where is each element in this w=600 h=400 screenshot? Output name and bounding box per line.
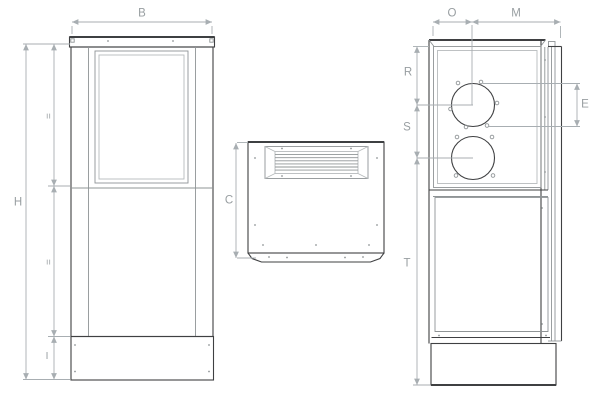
knockout-bottom <box>452 135 495 179</box>
top-panel-dimensions <box>236 143 256 259</box>
front-view <box>70 37 215 380</box>
cabinet-dimension-drawing <box>0 0 600 400</box>
dim-label-m: M <box>511 8 521 20</box>
front-window-inner <box>99 55 184 179</box>
dim-label-equal-upper: = <box>42 113 52 119</box>
dim-label-i: I <box>46 352 49 362</box>
front-window-outer <box>95 51 188 183</box>
side-back-panel <box>548 42 562 342</box>
front-top-cap <box>70 37 215 47</box>
dim-label-e: E <box>581 99 589 111</box>
side-base <box>431 344 556 386</box>
side-view <box>429 40 562 385</box>
side-upper-frame <box>434 47 542 188</box>
side-door-panel <box>435 198 548 332</box>
dim-label-h: H <box>14 197 22 209</box>
top-panel-view <box>248 142 384 262</box>
front-base <box>71 337 214 381</box>
dim-label-c: C <box>225 195 233 207</box>
dim-label-r: R <box>404 67 412 79</box>
technical-drawing-canvas: B H = = I C O M R S T E <box>0 0 600 400</box>
front-cabinet-body <box>71 47 213 337</box>
knockout-top <box>449 80 499 129</box>
dim-label-s: S <box>403 122 411 134</box>
dim-label-t: T <box>403 258 410 270</box>
louver-vent <box>265 147 368 179</box>
dim-label-equal-lower: = <box>42 259 52 265</box>
dim-label-o: O <box>448 8 457 20</box>
dim-label-b: B <box>138 8 146 20</box>
panel-body <box>248 142 384 253</box>
